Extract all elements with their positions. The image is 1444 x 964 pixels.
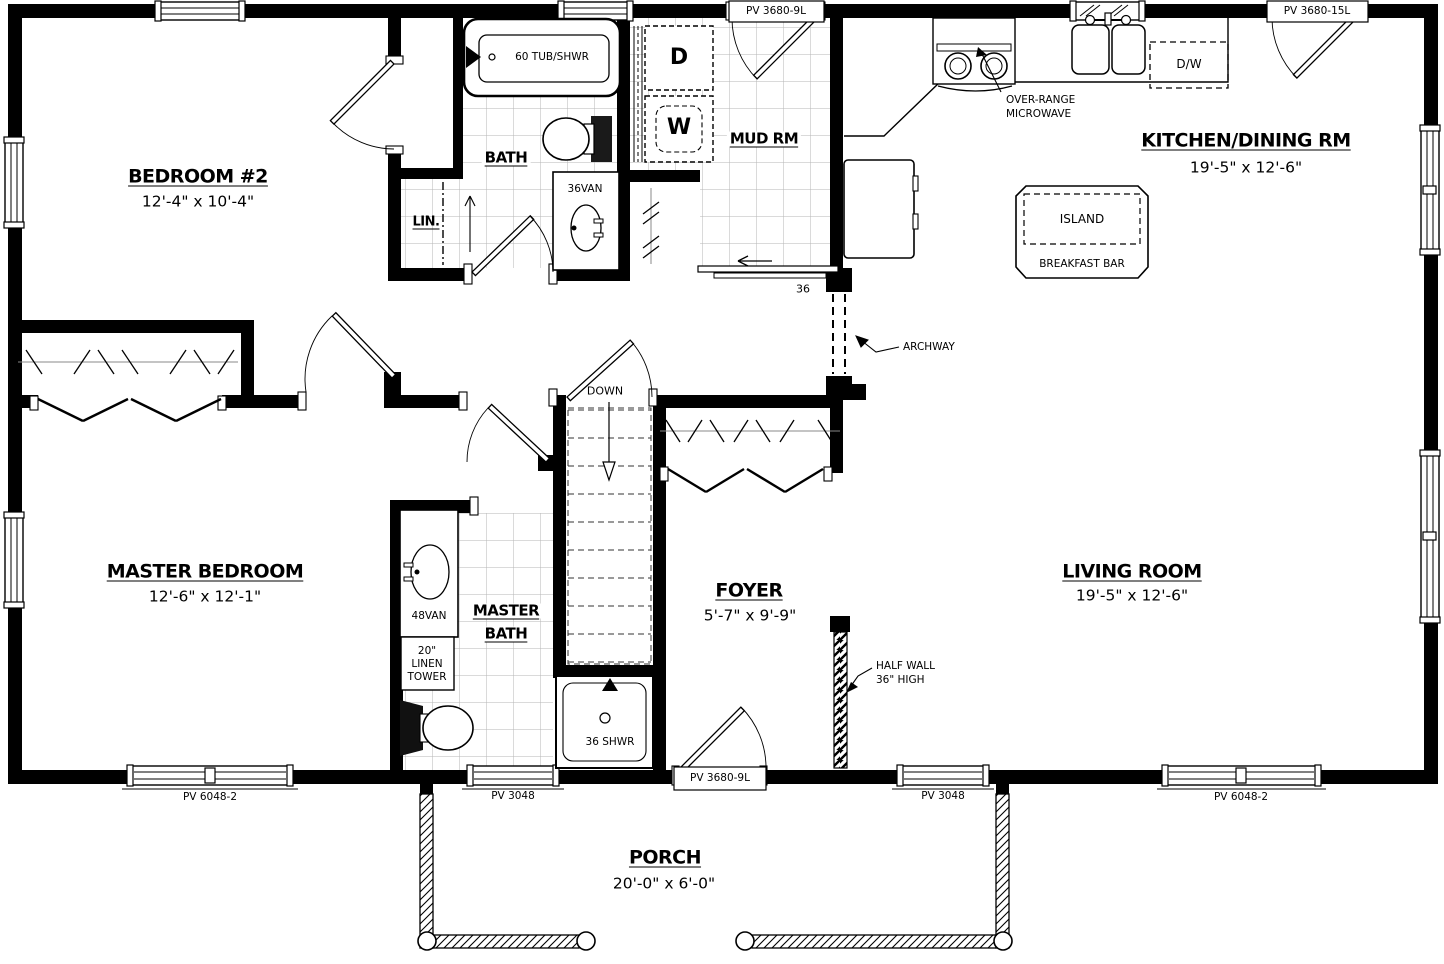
- mud-room-title: MUD RM: [727, 132, 801, 147]
- half-wall-label-1: HALF WALL: [876, 661, 935, 672]
- half-wall: [830, 616, 872, 768]
- vanity-36-label: 36VAN: [568, 184, 603, 195]
- kitchen-entry-door-leaf: [1293, 14, 1357, 78]
- master-bath-title-line2: BATH: [482, 627, 531, 642]
- porch-post: [577, 932, 595, 950]
- linen-tower-label-2: LINEN: [411, 659, 442, 670]
- porch-post: [418, 932, 436, 950]
- microwave-label-1: OVER-RANGE: [1006, 95, 1075, 106]
- porch-rail-bottom-left: [433, 935, 579, 948]
- porch-post: [736, 932, 754, 950]
- master-bedroom-title: MASTER BEDROOM: [107, 563, 304, 582]
- bedroom2-door-leaf: [330, 60, 394, 124]
- breakfast-bar-label: BREAKFAST BAR: [1039, 259, 1125, 270]
- window-label-pv3048-right: PV 3048: [921, 791, 965, 802]
- lin-closet-title: LIN.: [413, 216, 440, 229]
- dryer-label: D: [670, 47, 688, 69]
- porch-rail-bottom-right: [752, 935, 996, 948]
- master-bath-door-leaf: [488, 404, 549, 462]
- archway: [833, 294, 899, 374]
- bedroom2-dims: 12'-4" x 10'-4": [142, 194, 254, 210]
- kitchen-dims: 19'-5" x 12'-6": [1190, 160, 1302, 176]
- bedroom2-title: BEDROOM #2: [128, 168, 268, 187]
- linen-tower-label-3: TOWER: [408, 672, 447, 683]
- pocket-door-width-label: 36: [796, 284, 810, 295]
- bath-title: BATH: [482, 151, 531, 166]
- master-bedroom-door-leaf: [332, 313, 395, 378]
- island-label: ISLAND: [1060, 213, 1105, 225]
- foyer-dims: 5'-7" x 9'-9": [704, 608, 796, 624]
- refrigerator: [844, 160, 918, 258]
- tub-label: 60 TUB/SHWR: [515, 52, 589, 63]
- window-pv6048-left: [122, 765, 298, 789]
- range: [933, 18, 1015, 91]
- shower-label: 36 SHWR: [586, 737, 635, 748]
- master-bedroom-left-window: [4, 512, 24, 608]
- foyer-closet-rod: [660, 420, 840, 492]
- window-pv3048-right: [892, 765, 994, 789]
- bedroom2-left-window: [4, 137, 24, 228]
- porch-rail-right: [996, 794, 1009, 948]
- window-label-pv3048-left: PV 3048: [491, 791, 535, 802]
- mud-closet-floor: [630, 182, 700, 268]
- linen-tower-label-1: 20": [418, 646, 436, 657]
- porch-rail-left: [420, 794, 433, 948]
- living-room-title: LIVING ROOM: [1062, 563, 1201, 582]
- porch-title: PORCH: [629, 849, 701, 868]
- kitchen-title: KITCHEN/DINING RM: [1141, 132, 1350, 151]
- dishwasher-label: D/W: [1176, 58, 1201, 70]
- microwave-label-2: MICROWAVE: [1006, 109, 1071, 120]
- window-label-pv6048-right: PV 6048-2: [1214, 792, 1268, 803]
- foyer-title: FOYER: [715, 582, 782, 601]
- porch-post: [994, 932, 1012, 950]
- foyer-closet-bifold-doors: [668, 469, 823, 492]
- kitchen-sink: [1072, 13, 1145, 74]
- master-bath-title-line1: MASTER: [470, 604, 542, 619]
- vanity-48-label: 48VAN: [412, 611, 447, 622]
- down-arrow: [603, 402, 615, 480]
- bedroom2-closet-bifold-doors: [38, 399, 221, 421]
- bedroom2-closet-rod: [18, 350, 238, 421]
- shower-36: [556, 676, 653, 768]
- half-wall-leader-arrowhead: [846, 682, 858, 693]
- mud-door-label: PV 3680-9L: [746, 6, 806, 17]
- stairs: [568, 402, 651, 664]
- archway-label: ARCHWAY: [903, 342, 955, 353]
- archway-leader-arrowhead: [856, 336, 868, 347]
- foyer-entry-door-leaf: [680, 707, 744, 771]
- window-pv3048-left: [462, 765, 564, 789]
- down-label: DOWN: [587, 386, 623, 397]
- foyer-door-label: PV 3680-9L: [690, 773, 750, 784]
- living-room-dims: 19'-5" x 12'-6": [1076, 588, 1188, 604]
- window-pv6048-right: [1157, 765, 1326, 789]
- washer-label: W: [667, 117, 691, 139]
- porch: [418, 784, 1012, 950]
- kitchen-door-label: PV 3680-15L: [1284, 6, 1351, 17]
- half-wall-label-2: 36" HIGH: [876, 675, 925, 686]
- window-label-pv6048-left: PV 6048-2: [183, 792, 237, 803]
- bedroom2-top-window: [155, 1, 245, 21]
- living-right-window: [1420, 450, 1440, 623]
- floor-plan-sheet: BEDROOM #2 12'-4" x 10'-4" BATH LIN. MUD…: [0, 0, 1444, 964]
- kitchen-right-window: [1420, 125, 1440, 255]
- master-bedroom-dims: 12'-6" x 12'-1": [149, 589, 261, 605]
- porch-dims: 20'-0" x 6'-0": [613, 876, 715, 892]
- bath-toilet: [543, 116, 612, 162]
